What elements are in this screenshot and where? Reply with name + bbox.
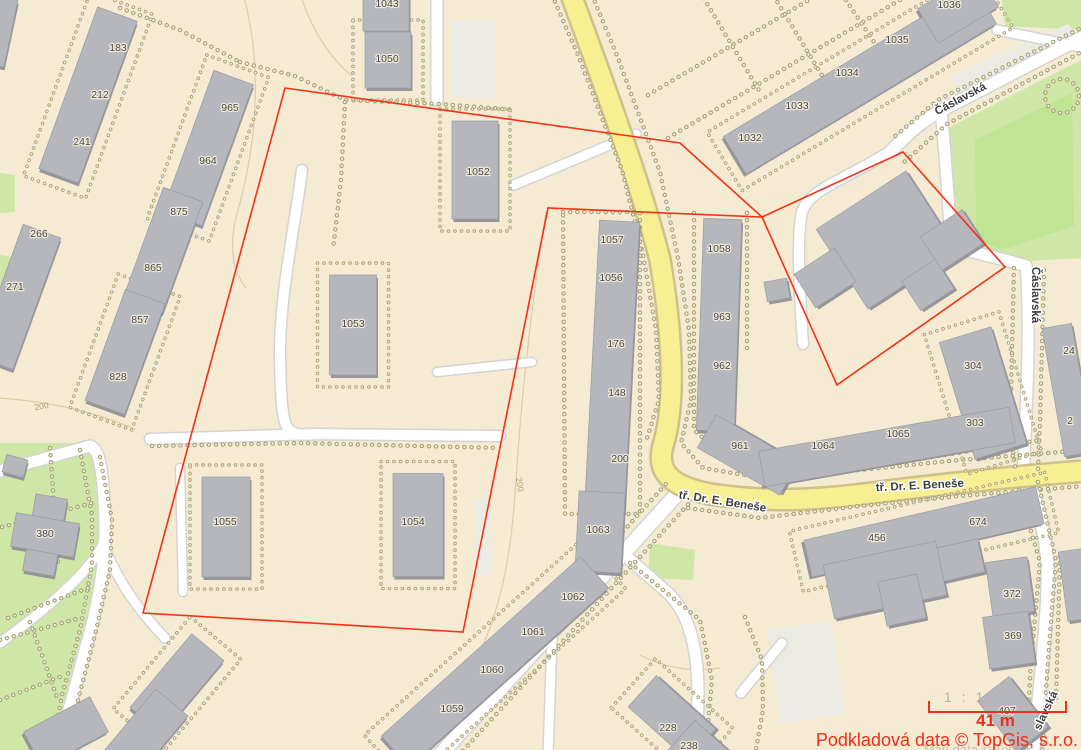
building-label: 1059 bbox=[440, 703, 464, 715]
building-label: 1062 bbox=[561, 591, 585, 603]
building bbox=[985, 557, 1034, 617]
building-label: 148 bbox=[608, 387, 626, 399]
building-label: 1058 bbox=[707, 243, 731, 255]
building-label: 241 bbox=[73, 136, 91, 148]
building-label: 456 bbox=[868, 532, 886, 544]
building-label: 875 bbox=[170, 206, 188, 218]
building-label: 964 bbox=[199, 155, 217, 167]
building-label: 1065 bbox=[886, 428, 910, 440]
building-label: 266 bbox=[30, 228, 48, 240]
building-label: 1052 bbox=[466, 166, 490, 178]
building-label: 24 bbox=[1063, 345, 1075, 357]
building-label: 2 bbox=[1067, 415, 1073, 427]
building-label: 369 bbox=[1004, 630, 1022, 642]
attribution-text: Podkladová data © TopGis, s.r.o. bbox=[816, 730, 1078, 750]
road bbox=[150, 434, 500, 439]
building-label: 1032 bbox=[738, 132, 762, 144]
building-label: 304 bbox=[964, 360, 982, 372]
street-label: Čáslavská bbox=[1029, 267, 1042, 324]
building-label: 674 bbox=[969, 516, 987, 528]
building-label: 865 bbox=[144, 262, 162, 274]
paved-area bbox=[767, 620, 845, 723]
building-label: 963 bbox=[713, 311, 731, 323]
building-label: 1057 bbox=[600, 234, 624, 246]
building-label: 271 bbox=[6, 281, 24, 293]
building-label: 1056 bbox=[599, 272, 623, 284]
building-label: 238 bbox=[680, 740, 698, 750]
building-label: 1033 bbox=[785, 100, 809, 112]
building-label: 183 bbox=[109, 42, 127, 54]
building-label: 857 bbox=[131, 314, 149, 326]
building-label: 962 bbox=[713, 360, 731, 372]
building-label: 200 bbox=[611, 453, 629, 465]
building-label: 1061 bbox=[521, 626, 545, 638]
building-label: 380 bbox=[36, 528, 54, 540]
building-label: 1035 bbox=[885, 34, 909, 46]
building-label: 303 bbox=[966, 417, 984, 429]
building-label: 1034 bbox=[835, 67, 859, 79]
building-label: 1060 bbox=[480, 664, 504, 676]
building bbox=[764, 278, 790, 302]
building-label: 1055 bbox=[213, 516, 237, 528]
scale-bar-label: 41 m bbox=[928, 711, 1063, 731]
building-label: 212 bbox=[91, 89, 109, 101]
green-area bbox=[0, 173, 15, 213]
building-label: 965 bbox=[221, 102, 239, 114]
building-label: 1053 bbox=[341, 318, 365, 330]
paved-area bbox=[452, 20, 497, 98]
road bbox=[180, 468, 183, 592]
map-canvas[interactable]: 2002001832122419659648752668652718578283… bbox=[0, 0, 1081, 750]
building-label: 1054 bbox=[401, 516, 425, 528]
building-label: 1063 bbox=[586, 524, 610, 536]
building-label: 228 bbox=[659, 722, 677, 734]
map-image: 2002001832122419659648752668652718578283… bbox=[0, 0, 1081, 750]
building-label: 372 bbox=[1003, 588, 1021, 600]
building-label: 176 bbox=[607, 338, 625, 350]
building-label: 1043 bbox=[375, 0, 399, 10]
building-label: 1036 bbox=[937, 0, 961, 11]
building-label: 961 bbox=[731, 440, 749, 452]
building-label: 1050 bbox=[375, 53, 399, 65]
building-label: 1064 bbox=[811, 440, 835, 452]
building-label: 828 bbox=[109, 371, 127, 383]
